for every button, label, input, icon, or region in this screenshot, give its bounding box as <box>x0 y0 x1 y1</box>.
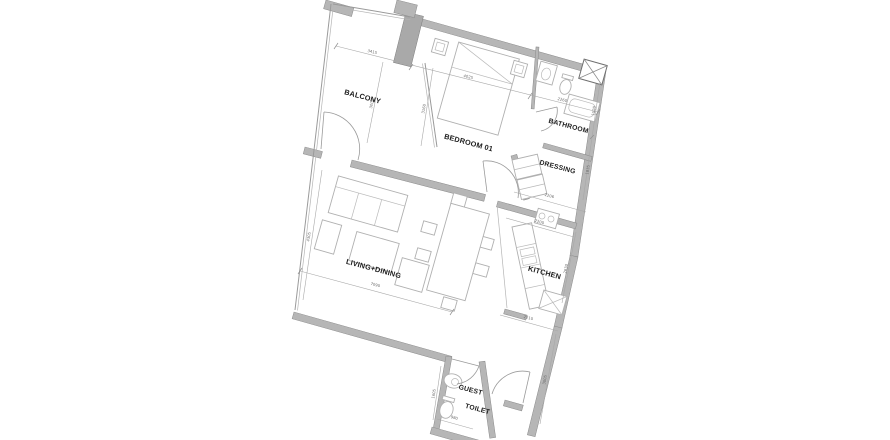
guest-toilet-width-dim: 980 <box>450 414 459 421</box>
wall-entry-stub <box>503 400 523 411</box>
balcony-railing-left-inner <box>298 5 334 311</box>
wall-guest-toilet-right <box>479 361 496 438</box>
living-width-dim: 7090 <box>370 281 381 288</box>
floor-plan-drawing: 3415 4025 2260 3005 3160 4305 1520 1835 … <box>0 0 890 440</box>
dining-table-icon <box>427 203 490 300</box>
sofa-icon <box>328 176 408 232</box>
door-swing-icon <box>321 112 360 160</box>
door-swing-icon <box>492 371 530 403</box>
kitchen-width-bottom-dim: 2210 <box>523 314 534 321</box>
dressing-width-dim: 2206 <box>544 192 555 199</box>
bedroom-label: BEDROOM 01 <box>443 132 494 154</box>
kitchen-left-edge <box>497 205 507 308</box>
balcony-bedroom-glazing <box>425 63 437 147</box>
floor-plan-page: 3415 4025 2260 3005 3160 4305 1520 1835 … <box>0 0 890 440</box>
washbasin-icon <box>536 61 558 85</box>
balcony-railing-left <box>295 4 331 310</box>
dressing-label: DRESSING <box>539 159 577 175</box>
wall-bathroom-dressing <box>543 143 592 161</box>
wall-bottom-living <box>292 312 452 363</box>
living-depth-dim: 4305 <box>305 231 312 242</box>
toilet-icon <box>558 74 574 96</box>
nightstand-icon <box>431 38 448 55</box>
bathroom-label: BATHROOM <box>548 118 590 135</box>
shaft-icon <box>579 59 608 85</box>
tv-console-icon <box>314 220 341 254</box>
balcony-label: BALCONY <box>343 87 382 105</box>
chair-icon <box>415 248 431 262</box>
wall-guest-toilet-bottom <box>430 427 490 440</box>
wall-stub-top-left <box>324 0 354 17</box>
chair-icon <box>421 221 437 235</box>
guest-toilet-label-1: GUEST <box>458 384 484 397</box>
guest-toilet-depth-dim: 1605 <box>430 388 437 399</box>
chair-icon <box>441 297 457 311</box>
wall-stub-balcony-bedroom <box>393 12 423 67</box>
bed-icon <box>437 42 519 135</box>
